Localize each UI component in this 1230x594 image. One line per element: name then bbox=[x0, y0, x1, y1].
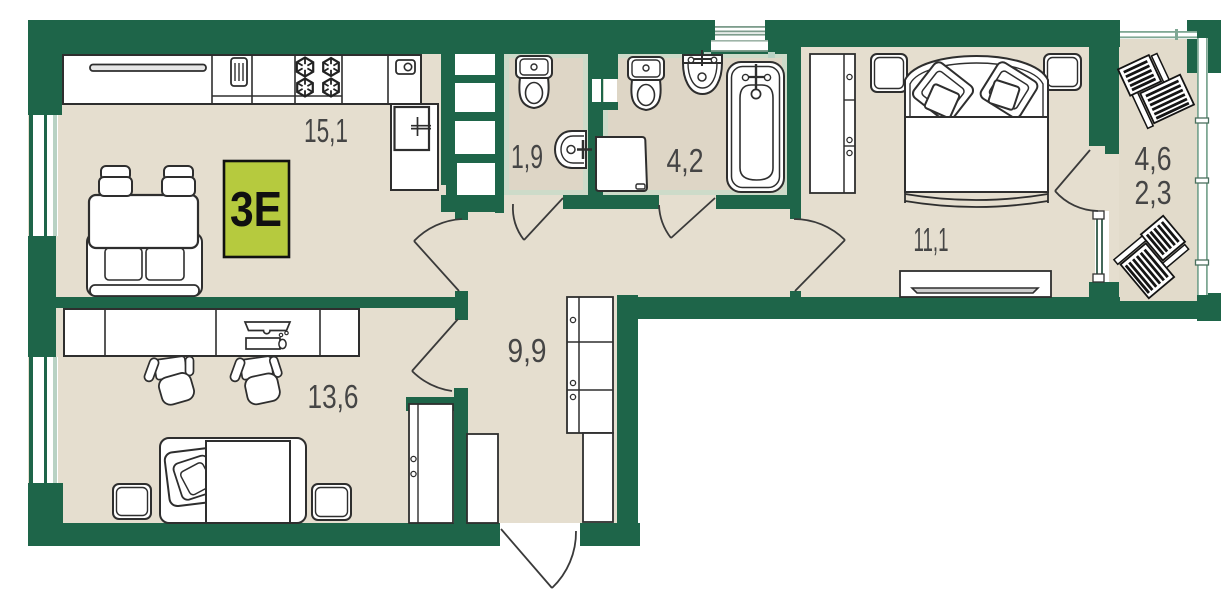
svg-text:3Е: 3Е bbox=[230, 183, 282, 237]
svg-text:9,9: 9,9 bbox=[508, 332, 547, 369]
svg-text:13,6: 13,6 bbox=[308, 378, 359, 415]
svg-text:4,2: 4,2 bbox=[667, 142, 704, 179]
svg-text:4,6: 4,6 bbox=[1135, 140, 1172, 177]
svg-text:1,9: 1,9 bbox=[511, 138, 543, 175]
svg-text:11,1: 11,1 bbox=[914, 221, 949, 258]
svg-text:15,1: 15,1 bbox=[304, 112, 348, 149]
svg-text:2,3: 2,3 bbox=[1135, 174, 1172, 211]
